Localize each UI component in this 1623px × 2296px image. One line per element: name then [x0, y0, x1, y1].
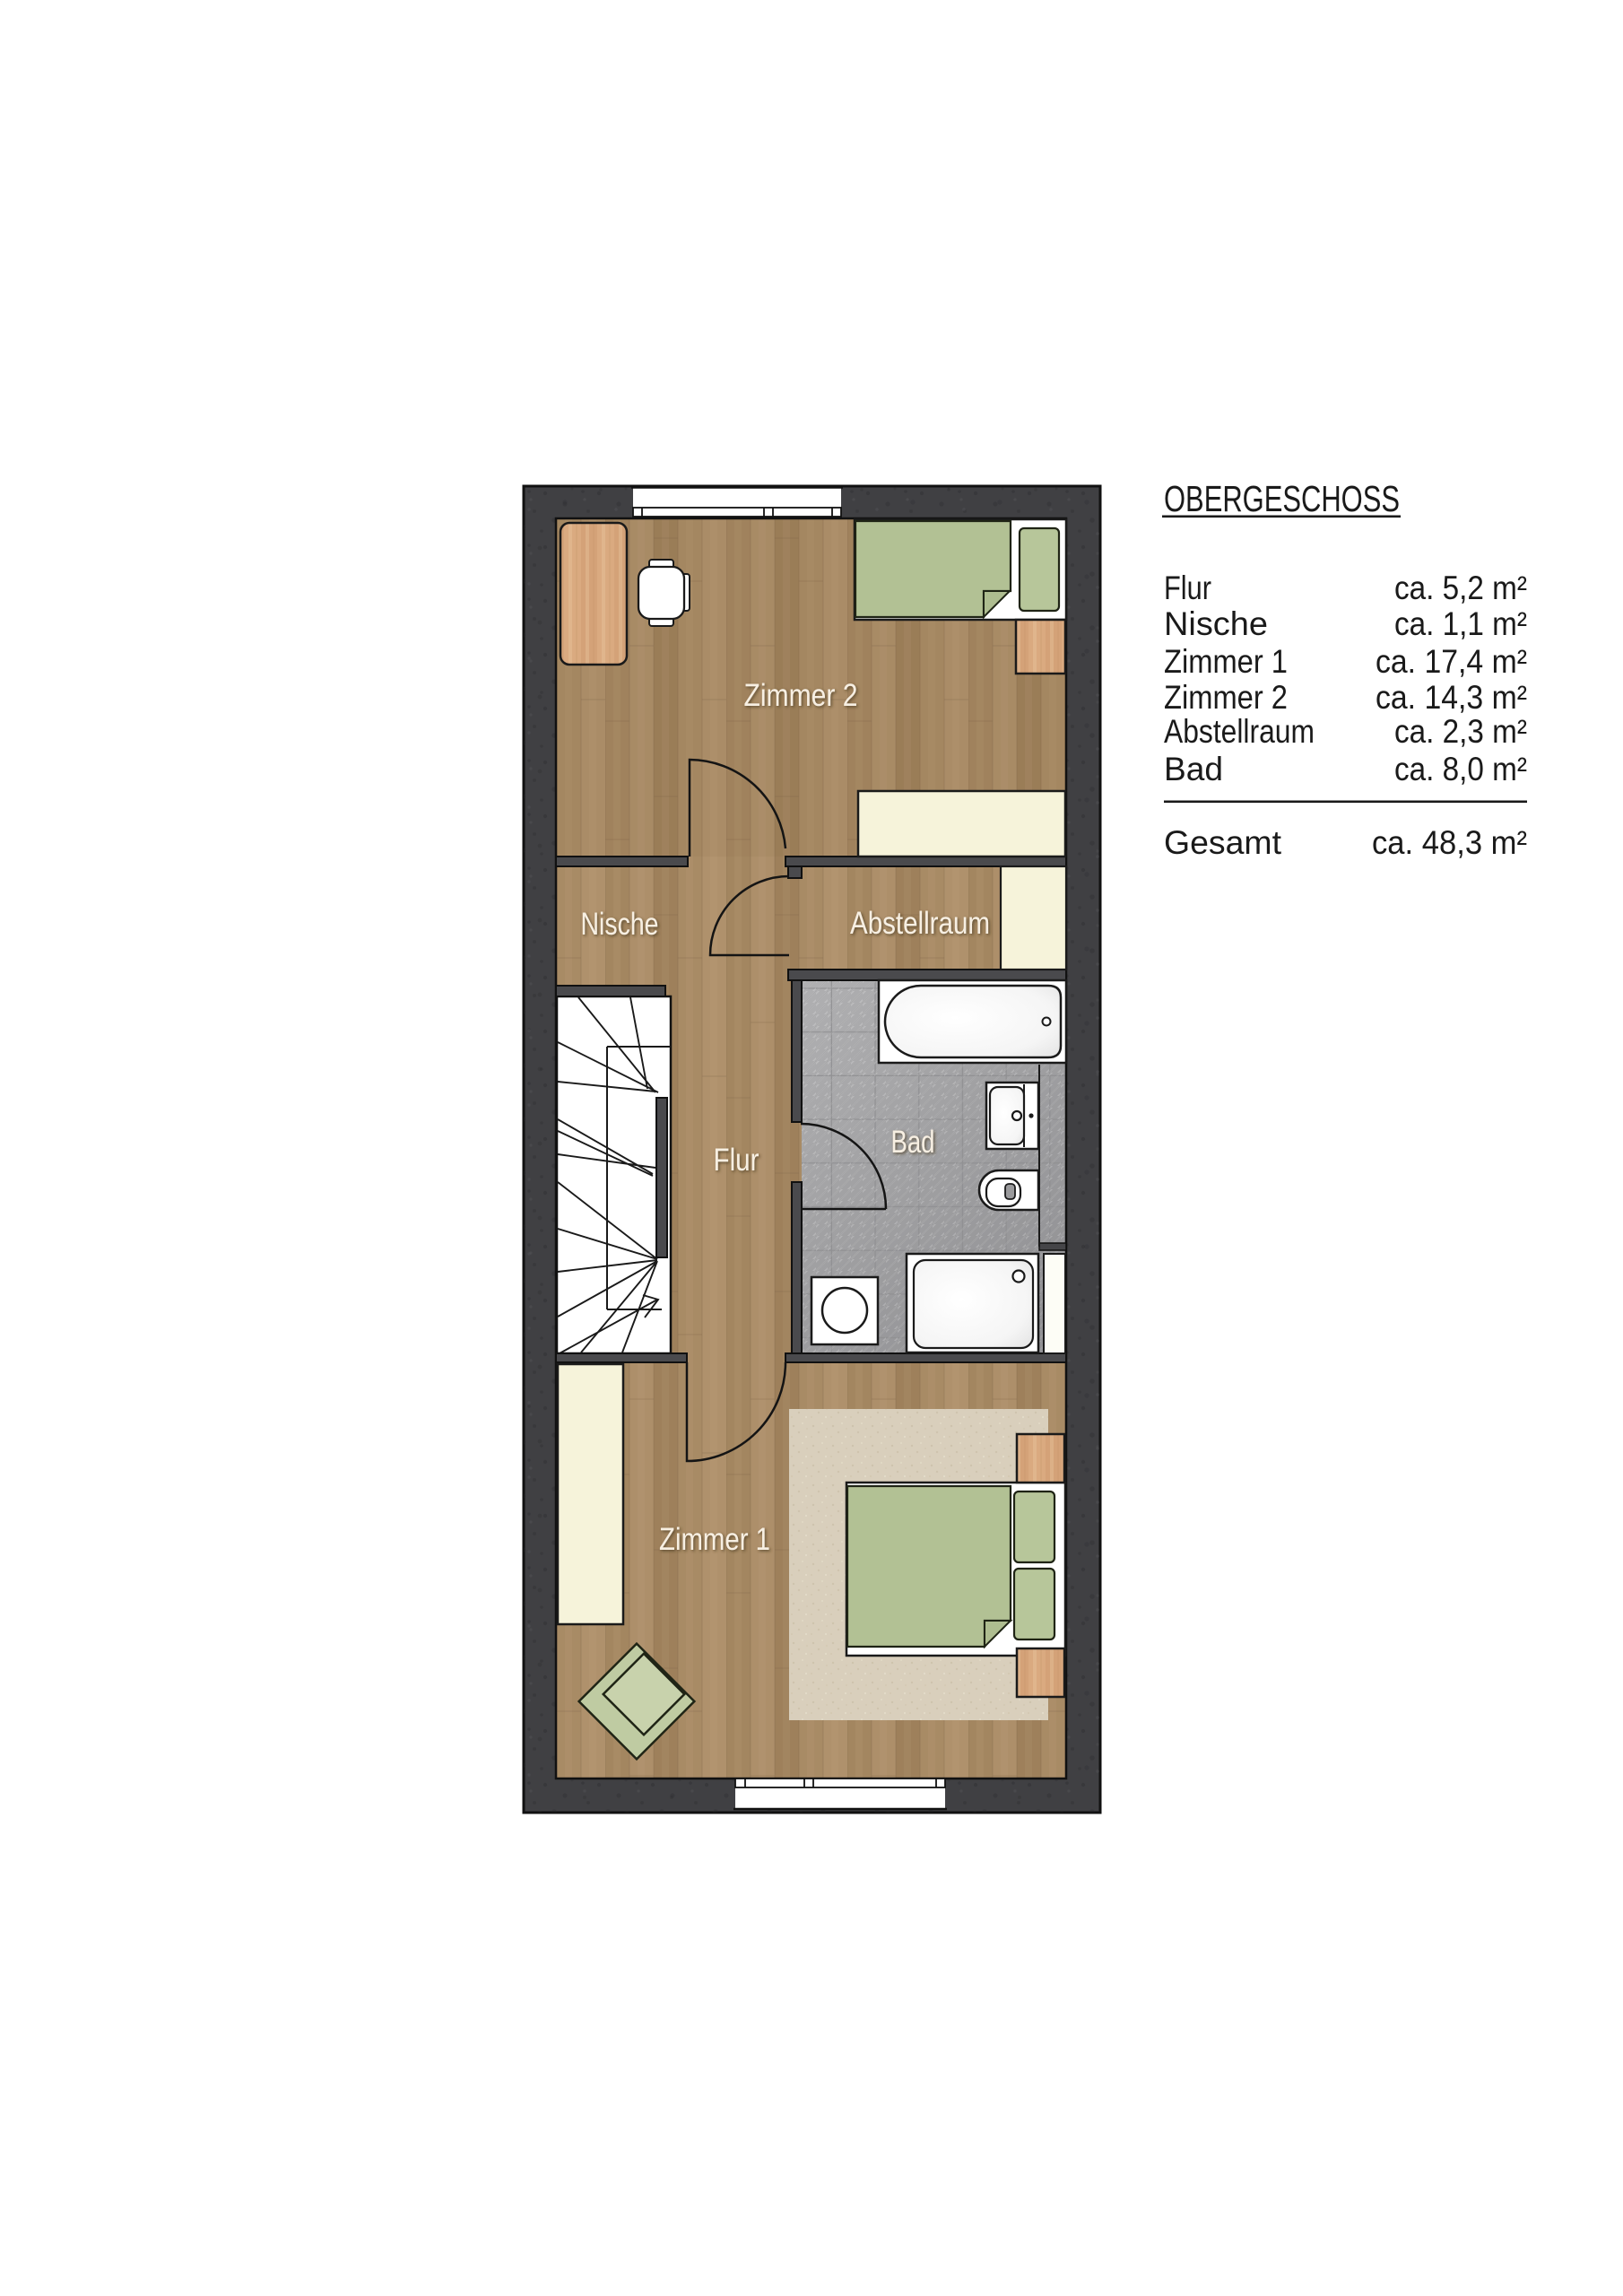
svg-text:Flur: Flur [1164, 570, 1211, 606]
svg-text:Bad: Bad [891, 1125, 935, 1160]
svg-text:Bad: Bad [1164, 751, 1223, 787]
svg-text:Nische: Nische [581, 907, 659, 942]
svg-text:ca. 5,2 m²: ca. 5,2 m² [1394, 570, 1527, 606]
svg-text:Abstellraum: Abstellraum [850, 906, 990, 941]
svg-text:OBERGESCHOSS: OBERGESCHOSS [1164, 478, 1400, 519]
svg-text:Nische: Nische [1164, 605, 1268, 642]
svg-text:Zimmer 2: Zimmer 2 [744, 678, 858, 713]
svg-text:Zimmer 1: Zimmer 1 [1164, 643, 1288, 680]
svg-text:Flur: Flur [714, 1143, 759, 1178]
svg-text:ca. 14,3 m²: ca. 14,3 m² [1376, 679, 1527, 716]
svg-text:ca. 2,3 m²: ca. 2,3 m² [1394, 713, 1527, 750]
svg-text:ca. 8,0 m²: ca. 8,0 m² [1394, 751, 1527, 787]
svg-text:ca. 1,1 m²: ca. 1,1 m² [1394, 605, 1527, 642]
svg-text:Zimmer 1: Zimmer 1 [659, 1522, 770, 1557]
svg-text:Abstellraum: Abstellraum [1164, 713, 1315, 750]
svg-text:ca. 17,4 m²: ca. 17,4 m² [1376, 643, 1527, 680]
svg-text:Gesamt: Gesamt [1164, 824, 1282, 861]
svg-text:Zimmer 2: Zimmer 2 [1164, 679, 1288, 716]
svg-text:ca. 48,3 m²: ca. 48,3 m² [1372, 824, 1527, 861]
